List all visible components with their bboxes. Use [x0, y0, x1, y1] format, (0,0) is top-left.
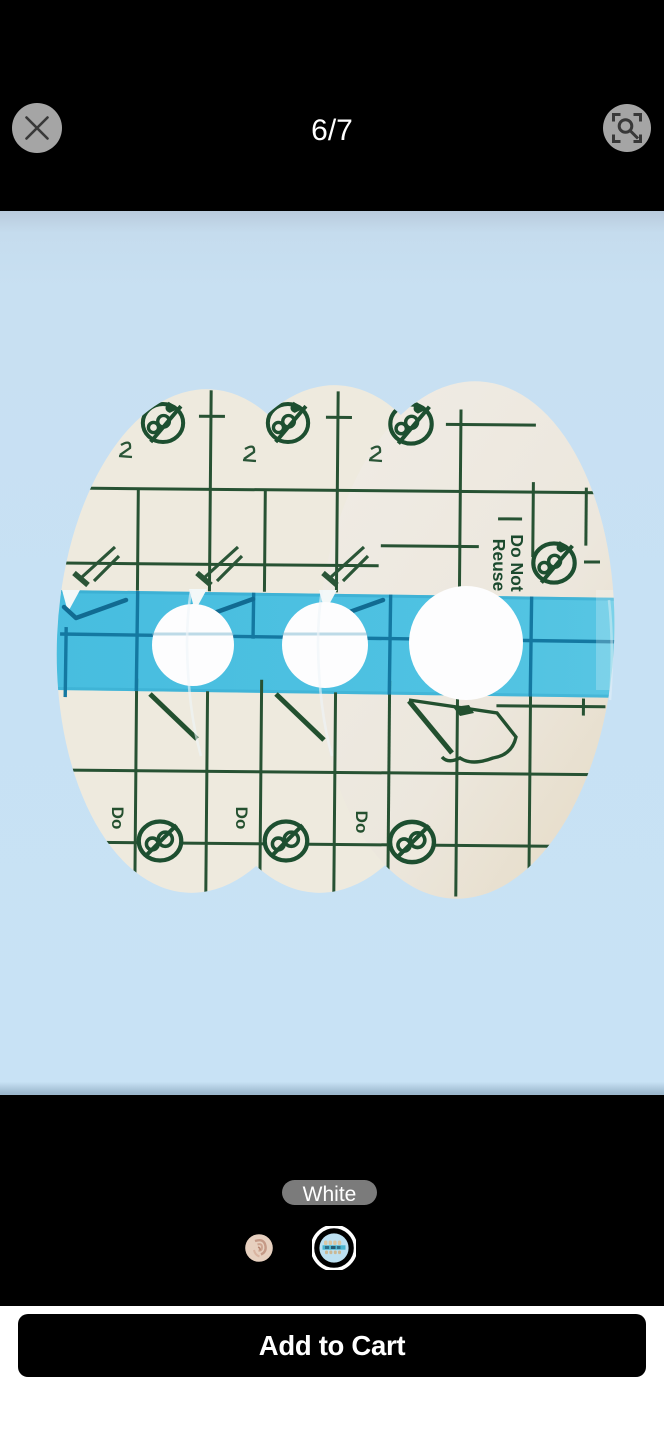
svg-text:Do NotReuse: Do NotReuse: [489, 534, 527, 592]
svg-text:Do: Do: [232, 807, 251, 830]
svg-text:Do: Do: [108, 807, 127, 830]
svg-text:Do: Do: [352, 811, 371, 834]
